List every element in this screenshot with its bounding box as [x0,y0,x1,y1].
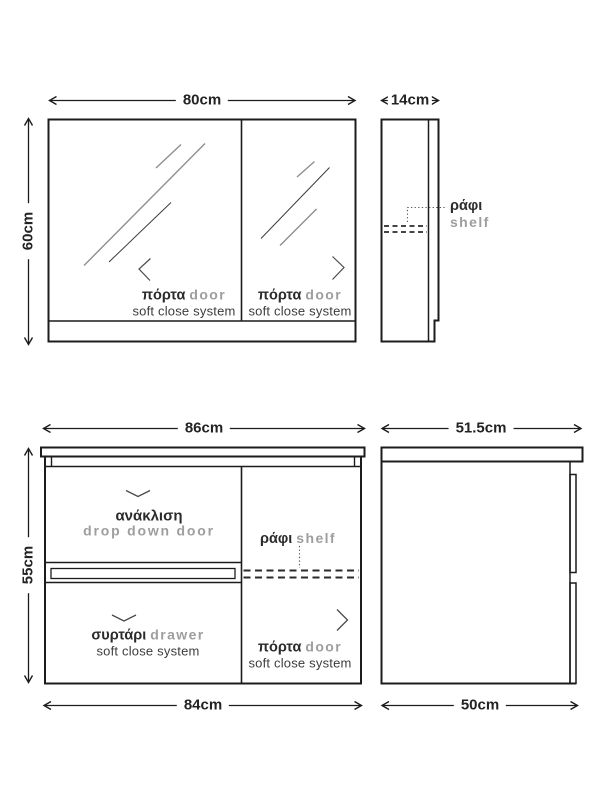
furniture-dimension-diagram: 80cm 14cm 60cm 86cm 51.5cm 55cm 84cm 50c… [0,0,600,800]
flap-front-panel [570,475,576,573]
flap-open-down-icon [126,491,150,497]
vanity-top-depth-dim: 51.5cm [449,420,514,437]
mirror-hatch-lines [84,144,317,266]
drawer-open-down-icon [112,615,136,621]
dimension-arrows [29,101,582,706]
vanity-side-view [382,448,583,684]
vanity-bottom-width-dim: 84cm [177,697,229,714]
shelf-leader-line [408,208,447,223]
vanity-drawer-label: συρτάριdrawer soft close system [91,628,204,659]
vanity-height-dim: 55cm [20,537,37,593]
mirror-depth-dim: 14cm [388,92,432,109]
shelf-dashed-lines [384,226,427,232]
mirror-shelf-label: ράφι shelf [450,198,490,230]
countertop [41,448,365,457]
mirror-width-dim: 80cm [176,92,228,109]
mirror-height-dim: 60cm [20,203,37,259]
door-open-right-icon [337,610,348,631]
diagram-linework [0,0,600,800]
vanity-flap-label: ανάκλιση drop down door [83,508,215,539]
vanity-bottom-depth-dim: 50cm [454,697,506,714]
countertop-side [382,448,583,462]
mirror-right-door-label: πόρταdoor soft close system [248,288,351,319]
mirror-left-door-label: πόρταdoor soft close system [132,288,235,319]
vanity-door-label: πόρταdoor soft close system [248,639,351,670]
vanity-shelf-label: ράφιshelf [260,530,336,548]
mirror-cabinet-side-view [382,120,447,342]
door-open-left-icon [139,259,151,281]
door-open-right-icon [333,257,345,280]
drawer-gap-groove [51,569,235,579]
drawer-front-panel [570,583,576,684]
shelf-dashed-lines [244,571,360,578]
vanity-top-width-dim: 86cm [178,420,230,437]
